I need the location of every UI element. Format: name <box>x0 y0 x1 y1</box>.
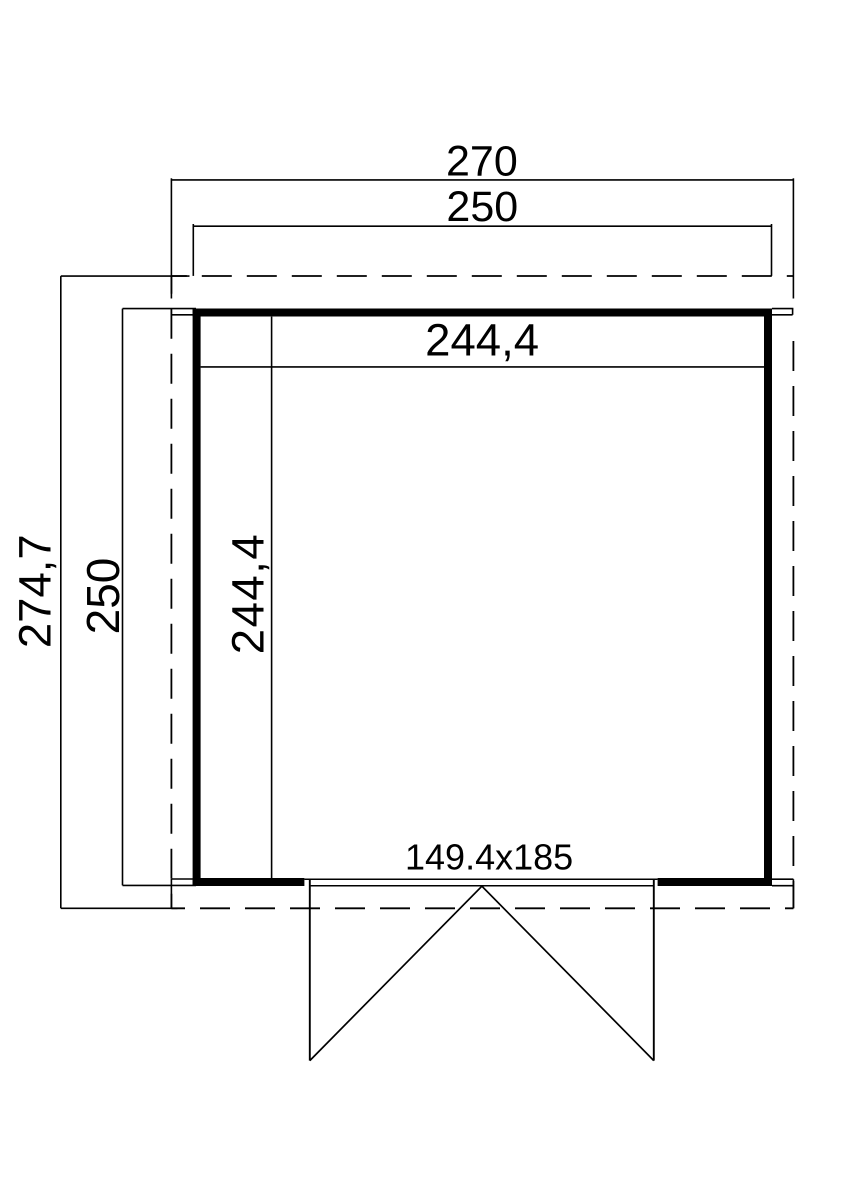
svg-text:244,4: 244,4 <box>223 533 274 654</box>
svg-text:270: 270 <box>446 138 518 186</box>
svg-text:274,7: 274,7 <box>10 534 61 648</box>
svg-text:250: 250 <box>77 558 129 635</box>
svg-text:244,4: 244,4 <box>425 315 539 366</box>
svg-text:250: 250 <box>446 183 518 231</box>
svg-text:149.4x185: 149.4x185 <box>405 837 573 878</box>
